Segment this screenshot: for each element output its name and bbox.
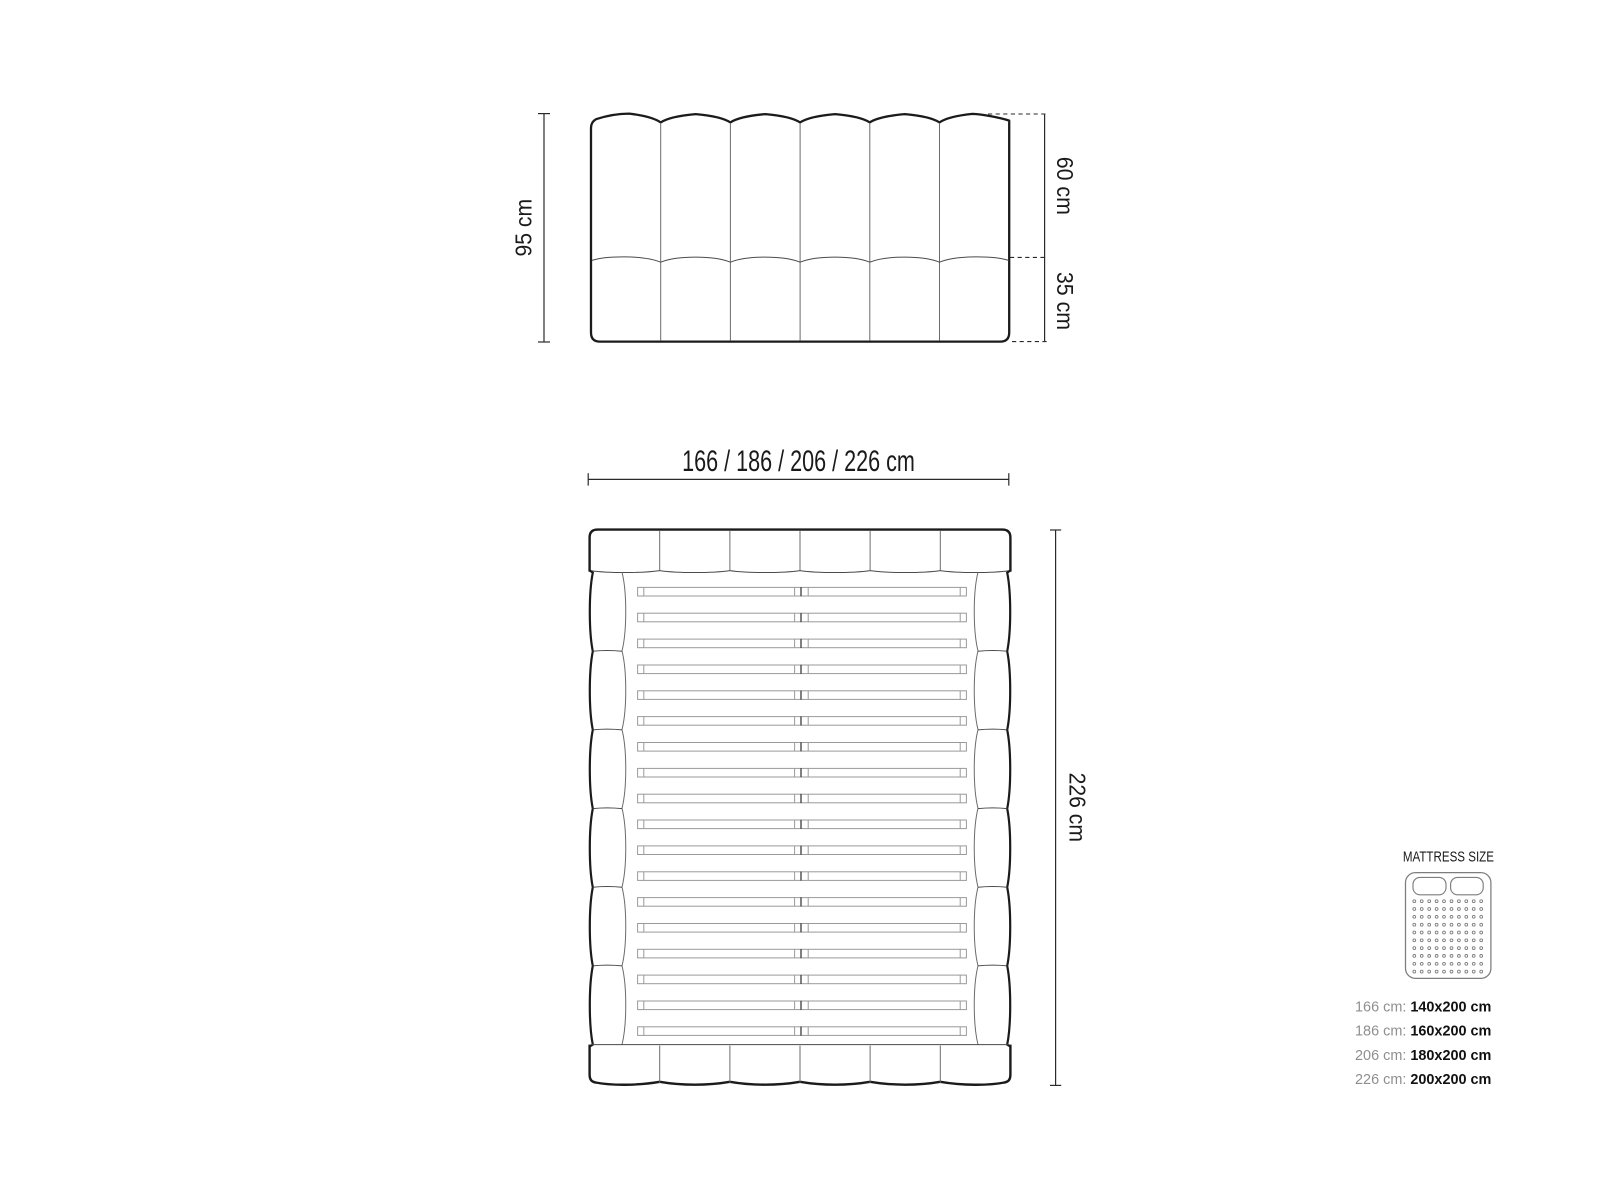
svg-text:226 cm: 226 cm [1064, 773, 1090, 842]
svg-text:166 / 186 / 206 / 226 cm: 166 / 186 / 206 / 226 cm [682, 443, 915, 477]
svg-text:95 cm: 95 cm [510, 199, 536, 257]
svg-text:60 cm: 60 cm [1052, 157, 1078, 215]
svg-text:226 cm: 200x200 cm: 226 cm: 200x200 cm [1355, 1072, 1491, 1088]
svg-text:MATTRESS SIZE: MATTRESS SIZE [1403, 848, 1494, 864]
svg-text:166 cm: 140x200 cm: 166 cm: 140x200 cm [1355, 999, 1491, 1015]
svg-text:35 cm: 35 cm [1052, 272, 1078, 330]
svg-text:186 cm: 160x200 cm: 186 cm: 160x200 cm [1355, 1023, 1491, 1039]
svg-text:206 cm: 180x200 cm: 206 cm: 180x200 cm [1355, 1048, 1491, 1064]
